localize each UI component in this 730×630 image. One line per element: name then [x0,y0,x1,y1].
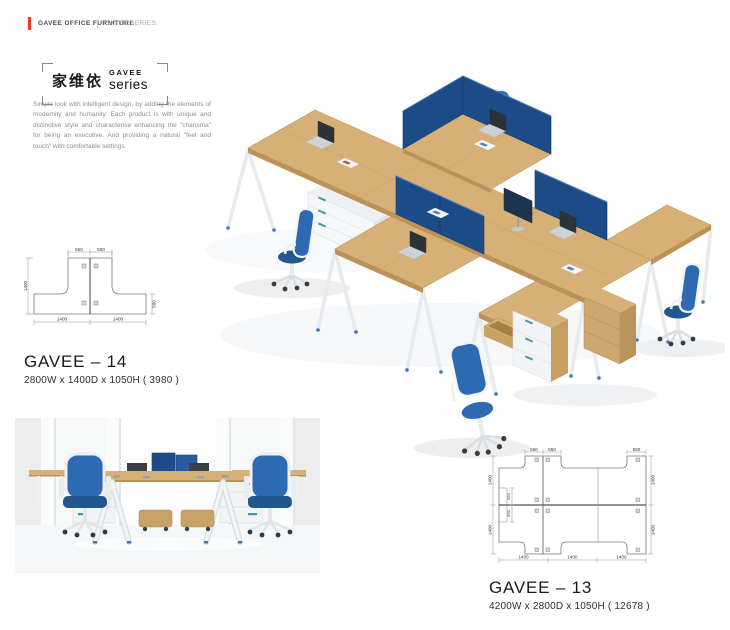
dimension-label: 1400 [488,474,493,485]
series-title: GAVEE SERIES [104,20,156,27]
dimension-label: 550 [548,447,556,452]
dimension-lines [491,450,654,563]
catalog-page: { "header": { "brand": "GAVEE OFFICE FUR… [0,0,730,630]
dimension-labels: 550 550 550 1400 1400 1400 1400 550 550 … [488,447,656,560]
product-block-gavee13: GAVEE – 13 4200W x 2800D x 1050H ( 12678… [489,578,650,612]
dimension-label: 550 [97,247,105,252]
logo-latin-bottom: series [109,78,148,92]
dimension-label: 1400 [616,555,627,560]
logo-latin-top: GAVEE [109,69,148,77]
dimension-label: 550 [506,509,511,516]
workstation-render [180,40,725,465]
dimension-label: 1400 [113,317,124,322]
dimension-label: 1400 [24,280,28,291]
accent-red-bar [28,17,31,30]
dimension-label: 1400 [651,524,656,535]
dimension-label: 1400 [488,524,493,535]
bracket-corner-icon [157,63,168,72]
dimension-label: 1400 [651,474,656,485]
plan-diagram-gavee13: 550 550 550 1400 1400 1400 1400 550 550 … [487,446,657,568]
product-name: GAVEE – 14 [24,352,179,372]
dimension-label: 500 [152,300,157,308]
dimension-label: 1400 [567,555,578,560]
dimension-label: 1400 [57,317,68,322]
dimension-label: 1400 [518,555,529,560]
header-divider [97,19,98,29]
dimension-label: 550 [506,492,511,499]
dimension-label: 550 [75,247,83,252]
plan-diagram-gavee14: 550 550 1400 500 1400 1400 [24,244,159,336]
office-chair [658,263,702,346]
logo-block: 家维依 GAVEE series [42,63,168,105]
product-block-gavee14: GAVEE – 14 2800W x 1400D x 1050H ( 3980 … [24,352,179,386]
logo-chinese: 家维依 [52,70,103,91]
dimension-label: 550 [530,447,538,452]
dimension-label: 550 [633,447,641,452]
product-dimensions: 2800W x 1400D x 1050H ( 3980 ) [24,375,179,386]
product-photo [15,418,320,573]
product-dimensions: 4200W x 2800D x 1050H ( 12678 ) [489,601,650,612]
product-name: GAVEE – 13 [489,578,650,598]
